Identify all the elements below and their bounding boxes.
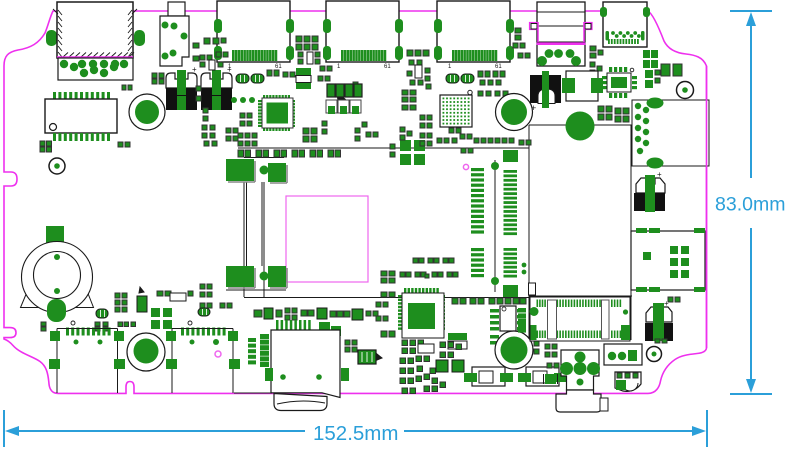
svg-text:+: + [192, 65, 197, 74]
svg-text:61: 61 [275, 64, 282, 70]
svg-text:61: 61 [384, 64, 391, 70]
svg-text:+: + [664, 299, 669, 308]
svg-text:+: + [531, 103, 536, 113]
svg-text:+: + [657, 170, 662, 179]
svg-text:61: 61 [495, 64, 502, 70]
svg-text:+: + [227, 65, 232, 74]
svg-text:83.0mm: 83.0mm [715, 194, 785, 216]
svg-text:152.5mm: 152.5mm [313, 422, 398, 445]
